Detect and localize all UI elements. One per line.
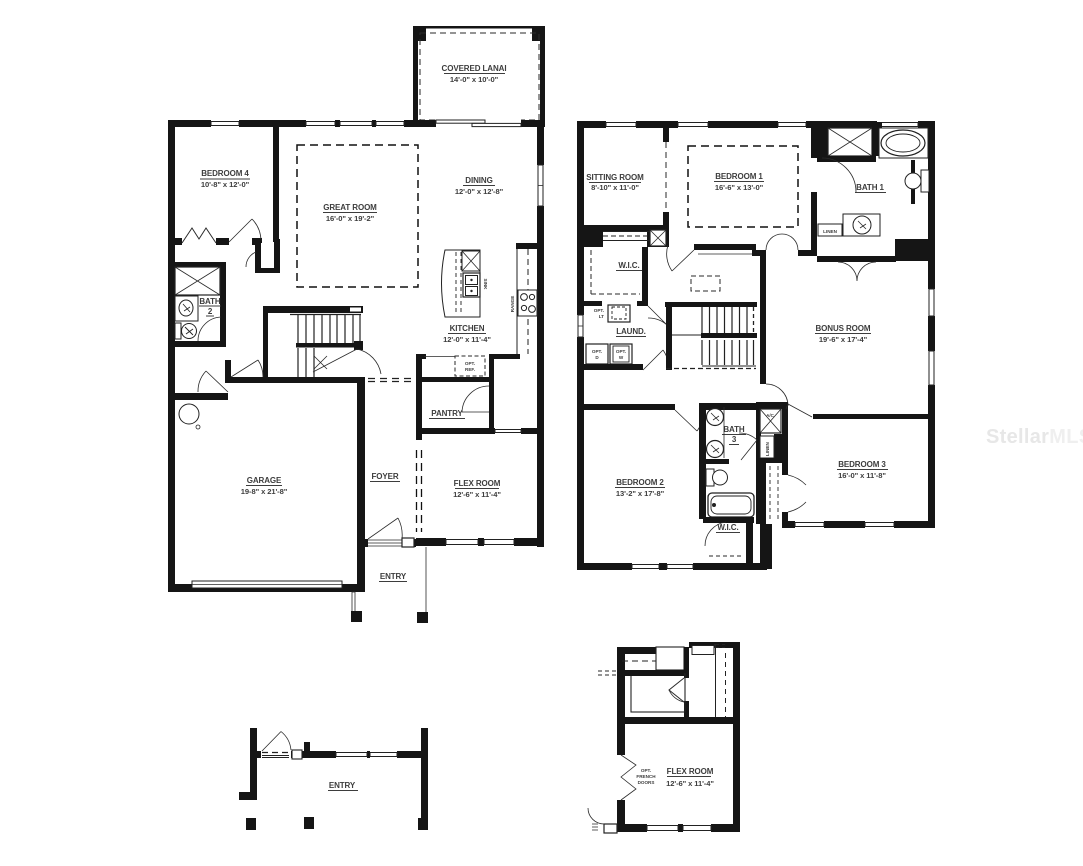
svg-text:W.I.C.: W.I.C. [717, 523, 738, 532]
svg-text:12'-6" x 11'-4": 12'-6" x 11'-4" [453, 490, 501, 499]
svg-text:COVERED LANAI: COVERED LANAI [442, 64, 507, 73]
svg-text:W: W [619, 355, 624, 360]
svg-text:BATH: BATH [723, 425, 745, 434]
svg-text:DINING: DINING [465, 176, 492, 185]
svg-text:ENTRY: ENTRY [329, 781, 356, 790]
svg-text:16'-0" x 19'-2": 16'-0" x 19'-2" [326, 214, 375, 223]
svg-text:BEDROOM 4: BEDROOM 4 [201, 169, 249, 178]
svg-text:FLEX ROOM: FLEX ROOM [454, 479, 501, 488]
svg-text:OPT.: OPT. [616, 349, 626, 354]
svg-text:12'-0" x 12'-8": 12'-0" x 12'-8" [455, 187, 504, 196]
svg-text:W.I.C.: W.I.C. [618, 261, 639, 270]
svg-text:KITCHEN: KITCHEN [450, 324, 485, 333]
svg-text:A/C: A/C [766, 413, 775, 418]
svg-text:LT: LT [599, 314, 604, 319]
svg-text:12'-6" x 11'-4": 12'-6" x 11'-4" [666, 779, 714, 788]
svg-text:13'-2" x 17'-8": 13'-2" x 17'-8" [616, 489, 665, 498]
svg-text:16'-6" x 13'-0": 16'-6" x 13'-0" [715, 183, 764, 192]
svg-text:StellarMLS: StellarMLS [986, 426, 1083, 448]
svg-text:LAUND.: LAUND. [616, 327, 646, 336]
svg-text:BATH: BATH [199, 297, 221, 306]
svg-text:PANTRY: PANTRY [431, 409, 463, 418]
svg-text:3: 3 [732, 435, 737, 444]
svg-text:16'-0" x 11'-8": 16'-0" x 11'-8" [838, 471, 886, 480]
svg-text:SITTING ROOM: SITTING ROOM [586, 173, 644, 182]
svg-text:14'-0" x 10'-0": 14'-0" x 10'-0" [450, 75, 499, 84]
svg-text:OPT.: OPT. [641, 768, 651, 773]
svg-text:REF.: REF. [465, 367, 475, 372]
svg-text:19'-6" x 17'-4": 19'-6" x 17'-4" [819, 335, 868, 344]
svg-text:RANGE: RANGE [510, 296, 515, 313]
svg-text:BEDROOM 1: BEDROOM 1 [715, 172, 763, 181]
svg-text:ENTRY: ENTRY [380, 572, 407, 581]
svg-text:OPT.: OPT. [592, 349, 602, 354]
svg-text:FRENCH: FRENCH [636, 774, 656, 779]
svg-text:DOORS: DOORS [638, 780, 655, 785]
svg-text:10'-8" x 12'-0": 10'-8" x 12'-0" [201, 180, 250, 189]
svg-text:12'-0" x 11'-4": 12'-0" x 11'-4" [443, 335, 491, 344]
svg-text:BATH 1: BATH 1 [856, 183, 884, 192]
svg-text:GARAGE: GARAGE [247, 476, 282, 485]
svg-text:19-8" x 21'-8": 19-8" x 21'-8" [241, 487, 288, 496]
svg-text:BEDROOM 3: BEDROOM 3 [838, 460, 886, 469]
svg-text:BEDROOM 2: BEDROOM 2 [616, 478, 664, 487]
svg-text:2: 2 [208, 307, 213, 316]
svg-text:8'-10" x 11'-0": 8'-10" x 11'-0" [591, 183, 639, 192]
svg-text:GREAT ROOM: GREAT ROOM [323, 203, 377, 212]
svg-text:OPT.: OPT. [465, 361, 475, 366]
svg-text:LINEN: LINEN [823, 229, 837, 234]
svg-text:FOYER: FOYER [371, 472, 398, 481]
svg-text:FLEX ROOM: FLEX ROOM [667, 767, 714, 776]
svg-text:SINK: SINK [483, 279, 488, 291]
svg-text:LINEN: LINEN [765, 442, 770, 456]
svg-text:OPT.: OPT. [594, 308, 604, 313]
svg-text:BONUS ROOM: BONUS ROOM [815, 324, 870, 333]
